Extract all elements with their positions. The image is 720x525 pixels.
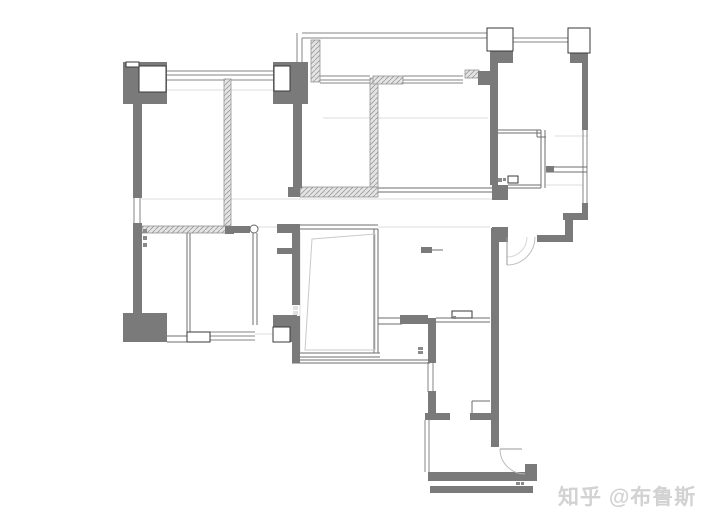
wall-segment (570, 52, 588, 63)
watermark: 知乎 @布鲁斯 (558, 481, 696, 511)
wall-segment (225, 226, 234, 234)
column-outline (508, 176, 518, 183)
wall-segment (290, 315, 297, 342)
wall-segment (430, 486, 533, 493)
wall-segment (288, 187, 300, 197)
tick-mark (521, 482, 524, 485)
hatch-wall (370, 78, 378, 190)
junction-node (250, 225, 258, 233)
hatch-wall (300, 187, 378, 197)
door-arc (500, 449, 525, 474)
wall-segment (492, 185, 508, 200)
tick-mark (143, 236, 147, 240)
wall-segment (491, 228, 499, 447)
wall-segment (400, 315, 428, 324)
hatch-wall (142, 226, 227, 233)
wall-segment (563, 213, 588, 220)
column-outline (187, 332, 210, 342)
tick-mark (418, 347, 423, 350)
floor-plan-page: 知乎 @布鲁斯 (0, 0, 720, 525)
wall-segment (277, 224, 300, 233)
hatch-wall (465, 70, 479, 78)
wall-segment (492, 227, 508, 242)
tick-mark (453, 316, 456, 319)
tick-mark-light (293, 311, 298, 315)
wall-segment (546, 166, 554, 172)
wall-segment (478, 71, 490, 85)
hatch-wall (224, 79, 231, 226)
tick-mark (143, 229, 147, 233)
tick-mark (498, 178, 502, 182)
wall-segment (293, 66, 302, 188)
wall-segment (492, 50, 513, 63)
floor-plan-layers (123, 28, 590, 493)
wall-segment (292, 228, 300, 305)
wall-segment (565, 220, 573, 237)
tick-mark (143, 243, 147, 247)
column-outline (126, 62, 139, 67)
tick-mark (418, 351, 423, 354)
wall-segment (233, 226, 250, 233)
wall-segment (123, 313, 167, 342)
hatch-wall (373, 76, 403, 84)
wall-segment (425, 413, 450, 420)
wall-segment (470, 413, 491, 420)
wall-segment (525, 464, 537, 481)
wall-segment (277, 248, 292, 254)
column-outline (273, 327, 290, 342)
floor-plan-canvas (0, 0, 720, 525)
wall-segment (428, 318, 436, 363)
column-outline (274, 66, 290, 91)
wall-segment (133, 223, 142, 313)
furniture-outline (305, 234, 375, 350)
wall-segment (537, 235, 573, 242)
wall-segment (421, 247, 432, 253)
wall-segment (582, 53, 588, 130)
column-outline (139, 66, 166, 92)
column-outline (568, 28, 590, 53)
wall-segment (133, 104, 142, 198)
hatch-wall (311, 40, 320, 82)
column-outline (487, 28, 513, 51)
door-arc-light (507, 237, 527, 257)
tick-mark (503, 178, 506, 181)
tick-mark-light (293, 306, 298, 310)
wall-segment (490, 50, 498, 185)
tick-mark (516, 482, 520, 485)
